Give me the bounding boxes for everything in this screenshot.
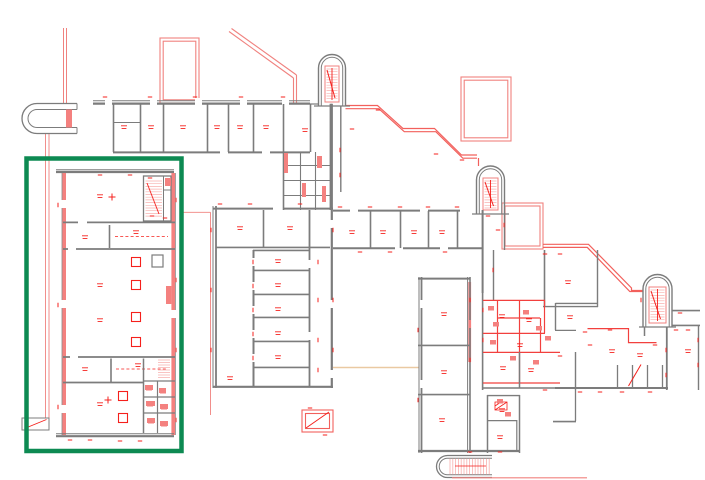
bottom-exterior-stair: [437, 456, 587, 478]
middle-rooms-cluster: [483, 250, 598, 390]
dimension-annotations: [58, 97, 698, 452]
wing-top-row: [93, 98, 341, 210]
drawing-canvas[interactable]: [0, 0, 705, 480]
floorplan-svg: [0, 0, 705, 480]
wing-bottom-centre: [487, 395, 520, 453]
wing-right: [553, 303, 700, 422]
stair-towers: [146, 55, 677, 478]
wing-centre-vertical: [418, 277, 520, 453]
